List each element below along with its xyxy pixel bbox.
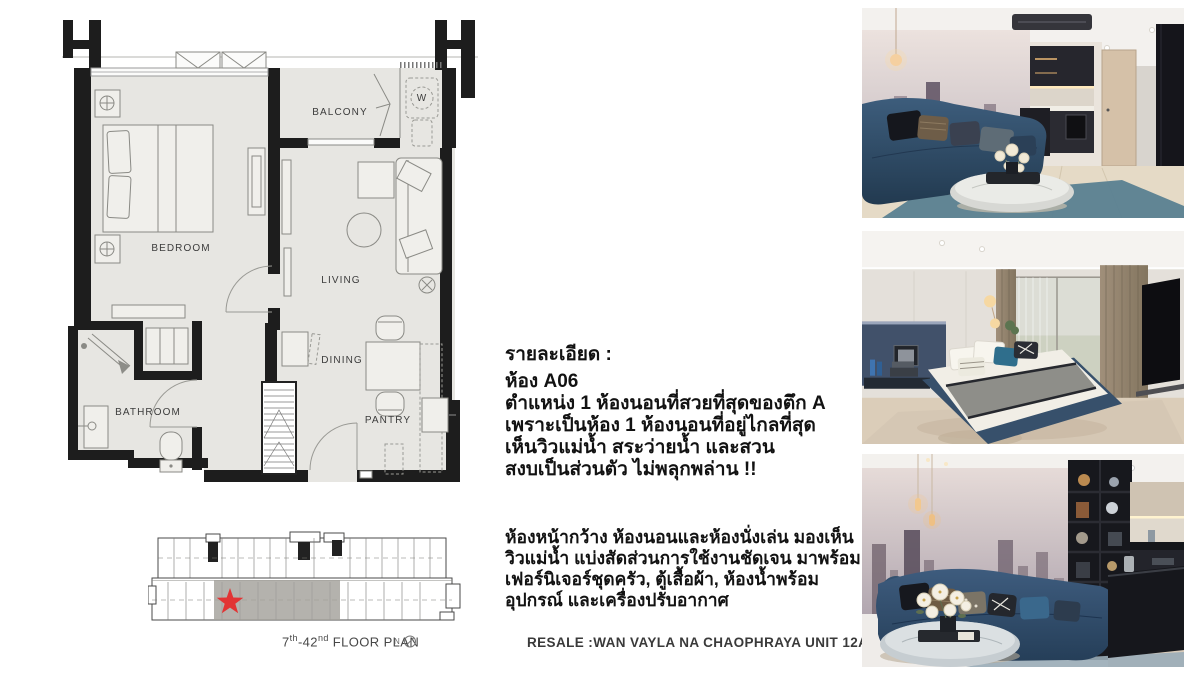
bedroom-bench bbox=[112, 305, 185, 318]
closet-niche bbox=[146, 328, 188, 364]
photo-living-room-with-kitchen bbox=[862, 8, 1184, 218]
pantry-label: PANTRY bbox=[365, 415, 411, 426]
resale-footer: RESALE :WAN VAYLA NA CHAOPHRAYA UNIT 12A… bbox=[527, 635, 884, 650]
vent-symbols bbox=[176, 52, 266, 68]
listing-flyer: W bbox=[0, 0, 1200, 675]
bed bbox=[103, 125, 213, 232]
svg-text:W: W bbox=[417, 93, 428, 104]
unit-floor-plan: W bbox=[58, 8, 482, 520]
description-line: เห็นวิวแม่น้ำ สระว่ายน้ำ และสวน bbox=[505, 437, 870, 459]
details-heading: รายละเอียด : bbox=[505, 339, 870, 369]
photo-bedroom bbox=[862, 231, 1184, 444]
bedroom-label: BEDROOM bbox=[151, 243, 210, 254]
description-line: สงบเป็นส่วนตัว ไม่พลุกพล่าน !! bbox=[505, 459, 870, 481]
balcony-sliding-door bbox=[308, 139, 374, 145]
north-arrow-icon: N bbox=[394, 634, 417, 649]
hall-wardrobe bbox=[262, 382, 296, 474]
dining-label: DINING bbox=[321, 355, 363, 366]
features-line: เฟอร์นิเจอร์ชุดครัว, ตู้เสื้อผ้า, ห้องน้… bbox=[505, 569, 870, 590]
description-line: ตำแหน่ง 1 ห้องนอนที่สวยที่สุดของตึก A bbox=[505, 393, 870, 415]
photo-living-room-sofa-detail bbox=[862, 454, 1184, 667]
living-label: LIVING bbox=[321, 275, 360, 286]
unit-description: ห้อง A06 ตำแหน่ง 1 ห้องนอนที่สวยที่สุดขอ… bbox=[505, 371, 870, 481]
bedroom-tv-cabinet bbox=[248, 148, 265, 215]
curtain-right bbox=[1100, 265, 1148, 408]
living-side-table bbox=[358, 162, 394, 198]
description-line: เพราะเป็นห้อง 1 ห้องนอนที่อยู่ไกลที่สุด bbox=[505, 415, 870, 437]
bathroom-label: BATHROOM bbox=[115, 407, 181, 418]
features-line: วิวแม่น้ำ แบ่งสัดส่วนการใช้งานชัดเจน มาพ… bbox=[505, 548, 870, 569]
features-line: อุปกรณ์ และเครื่องปรับอากาศ bbox=[505, 590, 870, 611]
features-line: ห้องหน้ากว้าง ห้องนอนและห้องนั่งเล่น มอง… bbox=[505, 527, 870, 548]
balcony-label: BALCONY bbox=[312, 107, 368, 118]
building-floor-plan bbox=[148, 530, 463, 630]
living-sofa bbox=[396, 158, 442, 274]
unit-features: ห้องหน้ากว้าง ห้องนอนและห้องนั่งเล่น มอง… bbox=[505, 527, 870, 611]
unit-title: ห้อง A06 bbox=[505, 371, 870, 393]
wall-tv bbox=[1142, 278, 1180, 386]
